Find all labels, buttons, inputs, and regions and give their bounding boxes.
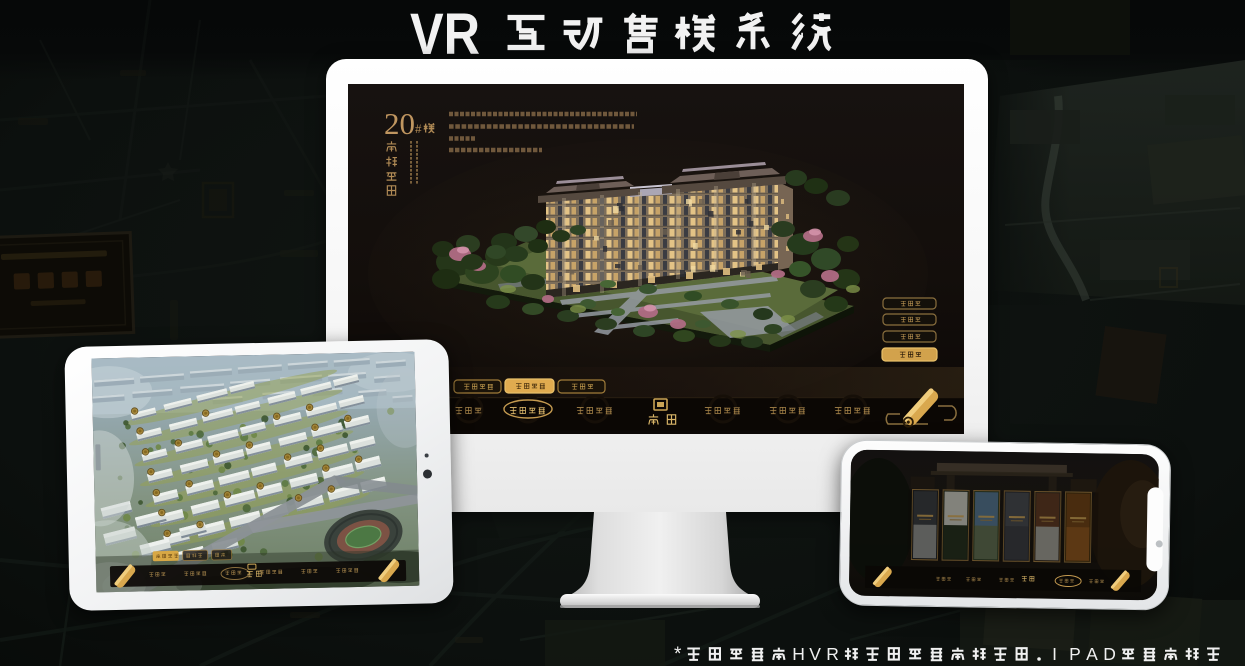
svg-text:*: * [674,644,682,665]
svg-text:H: H [792,644,805,664]
svg-text:A: A [1086,644,1098,664]
svg-text:P: P [1069,644,1081,664]
svg-text:V: V [809,644,821,664]
svg-text:D: D [1103,644,1116,664]
svg-text:I: I [1052,644,1057,664]
svg-text:R: R [826,644,839,664]
